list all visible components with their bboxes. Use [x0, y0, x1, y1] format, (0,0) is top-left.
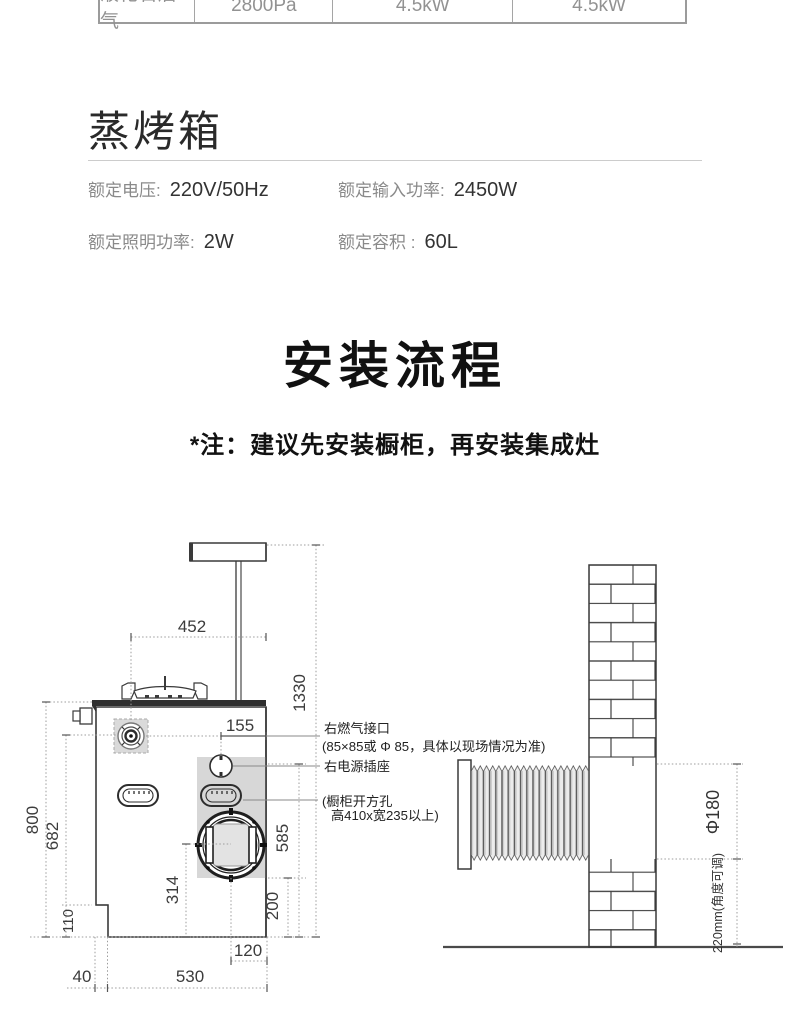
gas-table-cell: 4.5kW [512, 0, 685, 22]
label-cabinet-cutout-2: 高410x宽235以上) [331, 807, 439, 823]
spec-label: 额定电压: [88, 176, 161, 201]
steam-oven-title: 蒸烤箱 [88, 98, 223, 159]
dim-cutout-bottom: 200 [263, 892, 282, 920]
spec-rated-input-power: 额定输入功率: 2450W [338, 176, 517, 202]
duct-flange [458, 760, 471, 869]
burner [122, 676, 207, 699]
corrugated-duct [471, 765, 589, 861]
side-knob [80, 708, 92, 724]
dim-notch-width: 40 [73, 967, 92, 986]
dim-duct-offset: 120 [234, 941, 262, 960]
dim-total-height: 1330 [290, 674, 309, 712]
dim-gas-offset: 155 [226, 716, 254, 735]
dim-hole-diameter: Φ180 [703, 790, 723, 834]
gas-table-cell: 液化石油气 [100, 0, 194, 22]
wall-lower [589, 859, 656, 947]
dim-base-height: 110 [60, 909, 77, 933]
spec-label: 额定容积 : [338, 228, 415, 253]
installation-diagram: 452 155 120 530 40 1330 800 682 110 314 … [0, 520, 790, 1033]
spec-value: 2450W [454, 179, 517, 202]
spec-value: 60L [424, 231, 457, 254]
label-power-socket: 右电源插座 [324, 759, 390, 774]
wall-duct-assembly [443, 565, 783, 947]
gas-table-cell: 2800Pa [194, 0, 332, 22]
install-note: *注：建议先安装橱柜，再安装集成灶 [0, 425, 790, 460]
label-gas-inlet-detail: (85×85或 Φ 85，具体以现场情况为准) [322, 739, 545, 754]
spec-rated-lamp-power: 额定照明功率: 2W [88, 228, 234, 254]
dim-top-width: 452 [178, 617, 206, 636]
product-detail-page: 液化石油气 2800Pa 4.5kW 4.5kW 蒸烤箱 额定电压: 220V/… [0, 0, 790, 1033]
dim-duct-center-height: 314 [163, 876, 182, 904]
label-gas-inlet: 右燃气接口 [324, 720, 390, 736]
gas-spec-table: 液化石油气 2800Pa 4.5kW 4.5kW [98, 0, 687, 24]
section-divider [88, 160, 702, 161]
spec-value: 2W [204, 231, 234, 254]
gas-table-cell: 4.5kW [332, 0, 512, 22]
dim-body-height: 800 [23, 806, 42, 834]
install-process-title: 安装流程 [0, 326, 790, 398]
spec-label: 额定输入功率: [338, 176, 445, 201]
wall-upper [589, 565, 656, 766]
power-socket [210, 755, 232, 777]
spec-rated-capacity: 额定容积 : 60L [338, 228, 458, 254]
dim-wall-duct-height: 220mm(角度可调) [710, 853, 725, 953]
dim-cutout-height: 585 [273, 824, 292, 852]
dim-gas-height: 682 [43, 822, 62, 850]
gas-connection [114, 719, 148, 753]
dim-body-width: 530 [176, 967, 204, 986]
spec-rated-voltage: 额定电压: 220V/50Hz [88, 176, 269, 202]
label-cabinet-cutout-1: (橱柜开方孔 [322, 794, 392, 809]
wall-dimension-lines [657, 764, 743, 947]
spec-label: 额定照明功率: [88, 228, 195, 253]
spec-value: 220V/50Hz [170, 179, 269, 202]
